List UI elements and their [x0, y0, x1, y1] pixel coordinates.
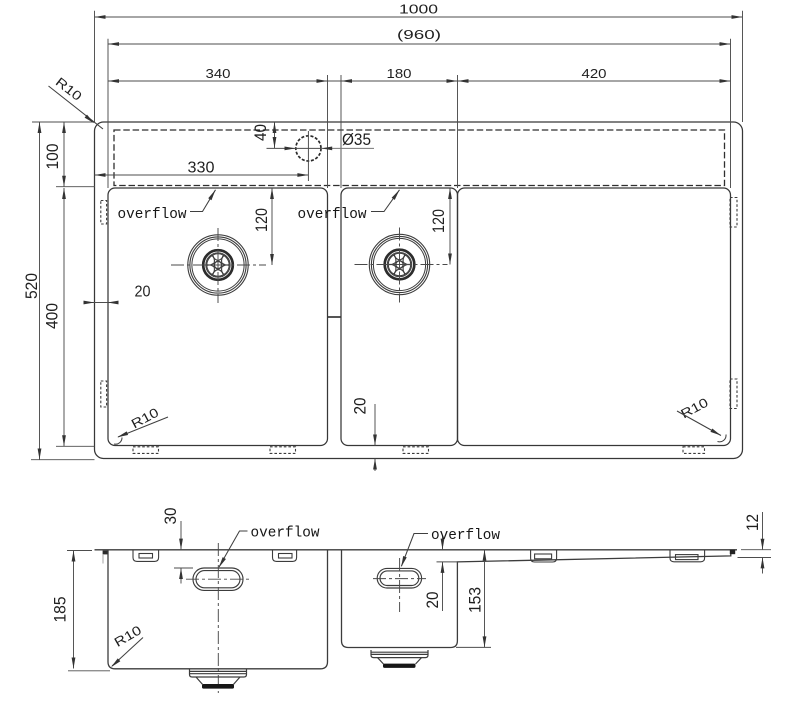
svg-text:520: 520 — [23, 273, 41, 299]
svg-text:R10: R10 — [111, 622, 144, 649]
svg-text:120: 120 — [430, 209, 448, 233]
svg-text:400: 400 — [44, 303, 62, 329]
svg-text:overflow: overflow — [431, 528, 500, 544]
svg-text:100: 100 — [44, 144, 62, 170]
svg-text:R10: R10 — [129, 405, 162, 432]
svg-text:120: 120 — [253, 208, 271, 232]
svg-text:overflow: overflow — [298, 207, 367, 223]
svg-text:20: 20 — [424, 592, 442, 609]
svg-text:30: 30 — [162, 508, 180, 525]
svg-text:R10: R10 — [678, 395, 711, 422]
svg-text:330: 330 — [188, 160, 215, 177]
svg-text:340: 340 — [206, 66, 231, 81]
svg-text:overflow: overflow — [118, 207, 187, 223]
svg-text:12: 12 — [744, 514, 762, 531]
svg-text:(960): (960) — [397, 27, 441, 42]
svg-text:1000: 1000 — [399, 2, 438, 17]
svg-text:overflow: overflow — [251, 526, 320, 542]
svg-text:20: 20 — [352, 398, 370, 415]
svg-text:185: 185 — [52, 597, 70, 623]
svg-text:420: 420 — [582, 66, 607, 81]
svg-text:Ø35: Ø35 — [342, 131, 371, 149]
svg-text:180: 180 — [387, 66, 412, 81]
svg-text:R10: R10 — [53, 74, 85, 104]
svg-text:20: 20 — [135, 284, 151, 301]
svg-text:153: 153 — [467, 587, 485, 613]
svg-text:40: 40 — [252, 124, 270, 141]
